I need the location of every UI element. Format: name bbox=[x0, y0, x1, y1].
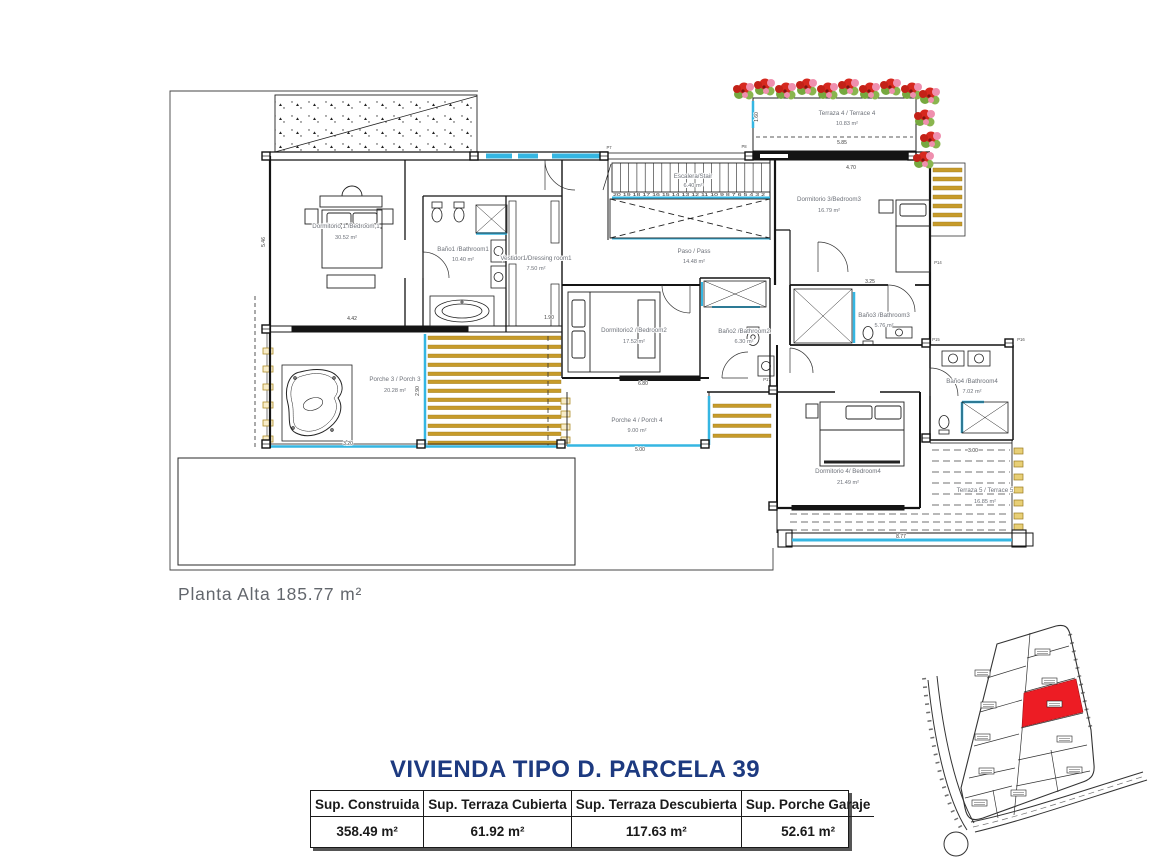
svg-text:21.49 m²: 21.49 m² bbox=[837, 480, 859, 486]
svg-text:1.90: 1.90 bbox=[544, 315, 554, 321]
table-value-terraza-descubierta: 117.63 m² bbox=[571, 817, 741, 847]
svg-text:Vestidor1/Dressing room1: Vestidor1/Dressing room1 bbox=[500, 255, 572, 262]
bed-3 bbox=[879, 200, 930, 272]
svg-text:Dormitorio 4/ Bedroom4: Dormitorio 4/ Bedroom4 bbox=[815, 468, 881, 475]
svg-text:17.52 m²: 17.52 m² bbox=[623, 339, 645, 345]
svg-text:10.83 m²: 10.83 m² bbox=[836, 121, 858, 127]
drawing-sheet: 20 19 18 17 16 15 14 13 12 11 10 9 8 7 6… bbox=[0, 0, 1152, 864]
svg-text:10.40 m²: 10.40 m² bbox=[452, 257, 474, 263]
svg-text:P14: P14 bbox=[934, 260, 942, 265]
deck-east-of-bedroom3 bbox=[930, 163, 965, 236]
table-value-terraza-cubierta: 61.92 m² bbox=[423, 817, 571, 847]
svg-text:Baño1 /Bathroom1: Baño1 /Bathroom1 bbox=[437, 246, 489, 253]
areas-table: Sup. Construida Sup. Terraza Cubierta Su… bbox=[310, 790, 849, 848]
floor-plan: 20 19 18 17 16 15 14 13 12 11 10 9 8 7 6… bbox=[0, 0, 1152, 620]
svg-text:7.50 m²: 7.50 m² bbox=[527, 266, 546, 272]
stair-numbers: 20 19 18 17 16 15 14 13 12 11 10 9 8 7 6… bbox=[613, 192, 766, 197]
svg-text:6.30 m²: 6.30 m² bbox=[735, 339, 754, 345]
svg-text:6.80: 6.80 bbox=[638, 381, 648, 387]
pergola-beams-porch3 bbox=[263, 348, 273, 442]
svg-text:P7: P7 bbox=[606, 145, 612, 150]
site-plan bbox=[915, 618, 1152, 864]
svg-text:Escalera/Stair: Escalera/Stair bbox=[674, 173, 713, 180]
deck-east-of-porch4 bbox=[713, 404, 771, 438]
drawing-title: VIVIENDA TIPO D. PARCELA 39 bbox=[300, 756, 850, 784]
svg-text:P17: P17 bbox=[763, 377, 771, 382]
svg-text:2.90: 2.90 bbox=[415, 386, 421, 396]
svg-text:Dormitorio2 / Bedroom2: Dormitorio2 / Bedroom2 bbox=[601, 327, 667, 334]
table-header-terraza-cubierta: Sup. Terraza Cubierta bbox=[423, 791, 571, 817]
svg-text:5.85: 5.85 bbox=[837, 140, 847, 146]
bathroom1-fixtures bbox=[430, 202, 507, 326]
floor-caption: Planta Alta 185.77 m² bbox=[178, 584, 362, 604]
svg-text:7.02 m²: 7.02 m² bbox=[963, 389, 982, 395]
svg-text:Terraza 4 / Terrace 4: Terraza 4 / Terrace 4 bbox=[819, 110, 876, 117]
svg-text:Baño2 /Bathroom2: Baño2 /Bathroom2 bbox=[718, 328, 770, 335]
walls bbox=[270, 151, 1033, 547]
table-header-construida: Sup. Construida bbox=[311, 791, 423, 817]
dressing-room-wardrobes bbox=[509, 201, 559, 326]
svg-text:Baño4 /Bathroom4: Baño4 /Bathroom4 bbox=[946, 378, 998, 385]
svg-text:3.00: 3.00 bbox=[968, 448, 978, 454]
svg-text:9.00 m²: 9.00 m² bbox=[628, 428, 647, 434]
svg-text:Dormitorio 1 /Bedroom 1: Dormitorio 1 /Bedroom 1 bbox=[312, 223, 380, 230]
svg-text:5.46: 5.46 bbox=[261, 237, 267, 247]
svg-text:1.60: 1.60 bbox=[754, 112, 760, 122]
svg-text:4.42: 4.42 bbox=[347, 316, 357, 322]
svg-text:3.20: 3.20 bbox=[343, 441, 353, 447]
svg-text:P16: P16 bbox=[1017, 337, 1025, 342]
deck-central bbox=[428, 336, 561, 445]
svg-text:Porche 3 / Porch 3: Porche 3 / Porch 3 bbox=[369, 376, 421, 383]
svg-text:Porche 4 / Porch 4: Porche 4 / Porch 4 bbox=[611, 417, 663, 424]
lower-floor-outline bbox=[178, 458, 575, 565]
svg-text:Terraza 5 / Terrace 5: Terraza 5 / Terrace 5 bbox=[957, 487, 1014, 494]
svg-text:6.40 m²: 6.40 m² bbox=[684, 183, 703, 189]
spa-jacuzzi bbox=[282, 365, 352, 441]
svg-text:Baño3 /Bathroom3: Baño3 /Bathroom3 bbox=[858, 312, 910, 319]
pergola-beams-porch4 bbox=[561, 398, 570, 443]
glazing bbox=[271, 101, 1012, 540]
svg-text:20.28 m²: 20.28 m² bbox=[384, 388, 406, 394]
door-reference-labels: P7 P8 P14 P15 P16 P17 bbox=[606, 144, 1025, 382]
void-double-height bbox=[610, 199, 770, 238]
table-value-porche-garaje: 52.61 m² bbox=[741, 817, 875, 847]
svg-text:Paso / Pass: Paso / Pass bbox=[677, 248, 710, 255]
pergola-beams-terrace5 bbox=[1014, 448, 1023, 530]
svg-text:4.70: 4.70 bbox=[846, 165, 856, 171]
svg-text:14.48 m²: 14.48 m² bbox=[683, 259, 705, 265]
svg-text:P8: P8 bbox=[741, 144, 747, 149]
svg-text:16.85 m²: 16.85 m² bbox=[974, 499, 996, 505]
svg-text:3.25: 3.25 bbox=[865, 279, 875, 285]
table-header-terraza-descubierta: Sup. Terraza Descubierta bbox=[571, 791, 741, 817]
svg-text:16.79 m²: 16.79 m² bbox=[818, 208, 840, 214]
svg-text:P15: P15 bbox=[932, 337, 940, 342]
svg-text:8.77: 8.77 bbox=[896, 534, 906, 540]
table-header-porche-garaje: Sup. Porche Garaje bbox=[741, 791, 875, 817]
roof-hatch bbox=[275, 95, 477, 152]
svg-text:30.52 m²: 30.52 m² bbox=[335, 235, 357, 241]
terrace4-frame bbox=[753, 98, 916, 152]
table-value-construida: 358.49 m² bbox=[311, 817, 423, 847]
svg-text:5.00: 5.00 bbox=[635, 447, 645, 453]
bed-4 bbox=[806, 402, 904, 466]
svg-text:Dormitorio 3/Bedroom3: Dormitorio 3/Bedroom3 bbox=[797, 196, 862, 203]
svg-text:5.76 m²: 5.76 m² bbox=[875, 323, 894, 329]
